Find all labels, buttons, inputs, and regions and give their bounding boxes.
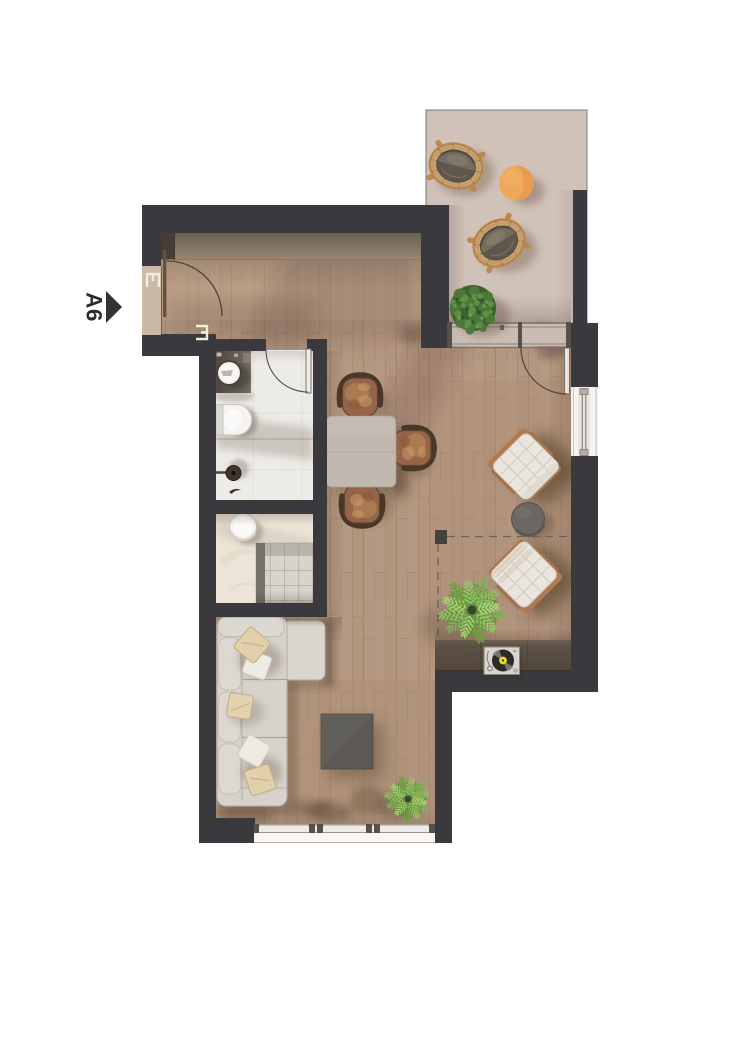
svg-text:A6: A6: [82, 292, 107, 322]
